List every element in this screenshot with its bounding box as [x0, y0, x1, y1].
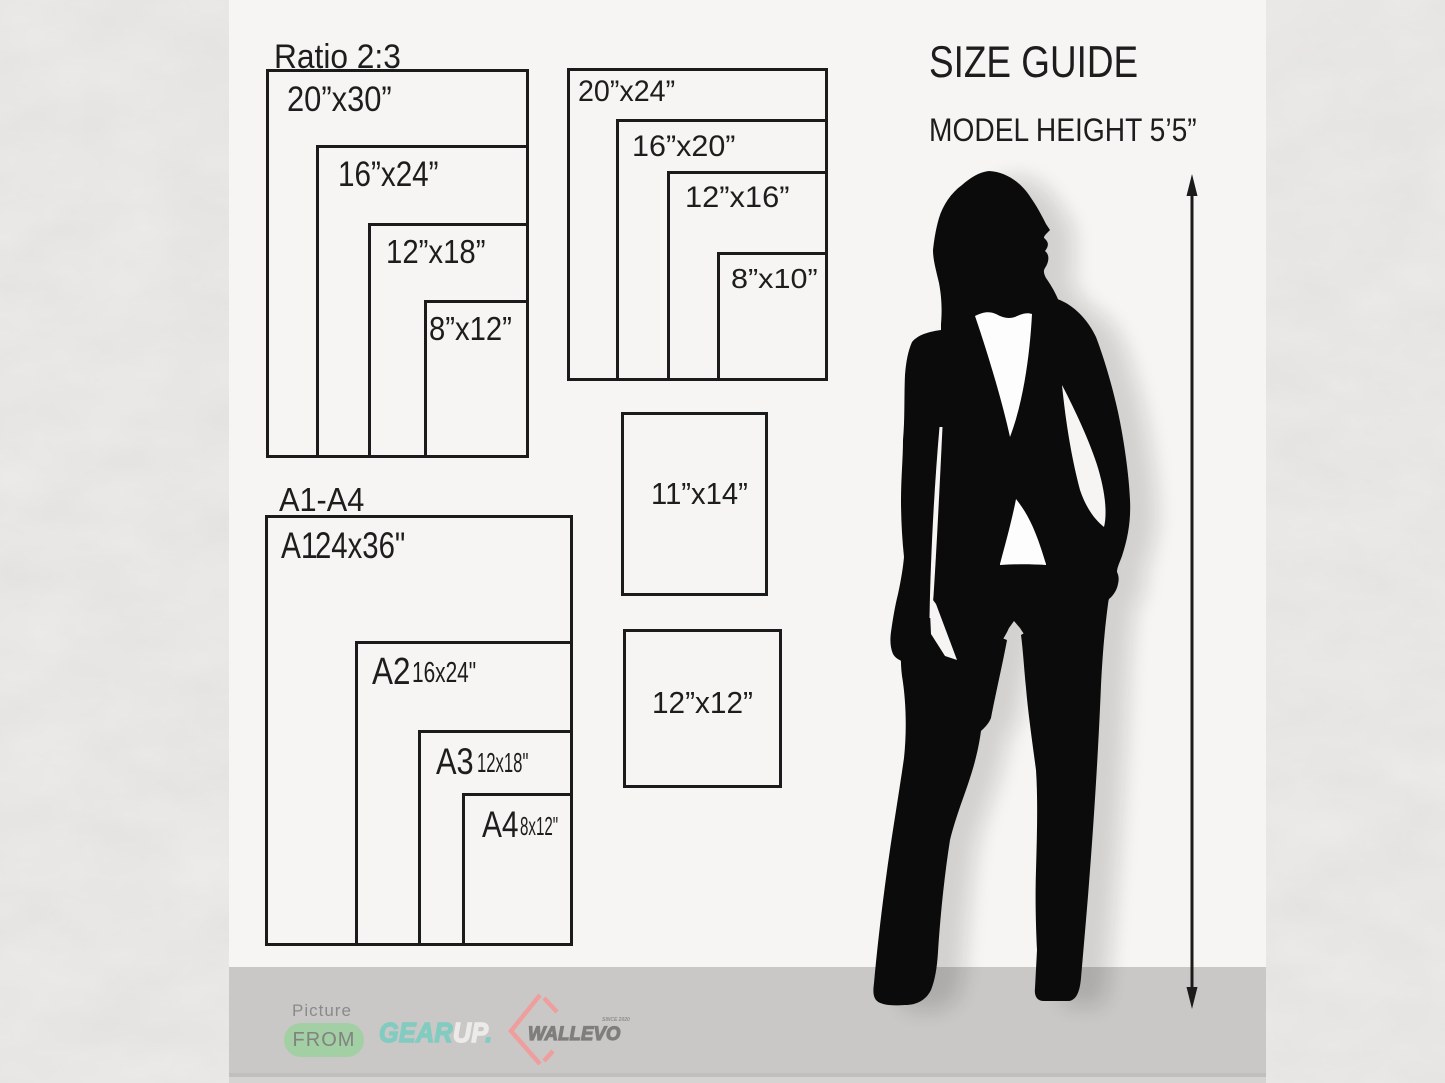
svg-text:SINCE 2020: SINCE 2020	[602, 1017, 630, 1023]
